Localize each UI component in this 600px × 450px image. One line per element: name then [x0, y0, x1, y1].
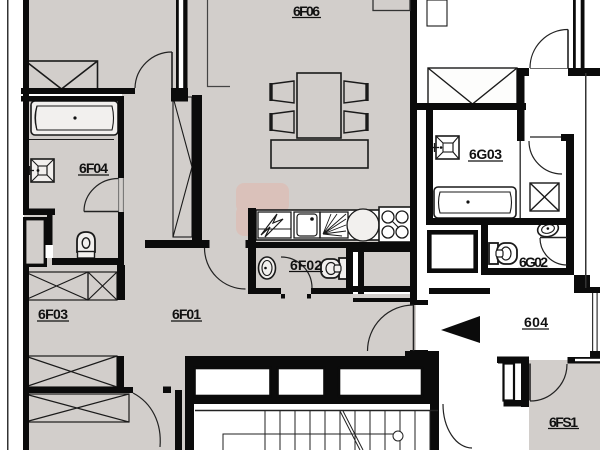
svg-text:6F04: 6F04	[79, 160, 108, 176]
svg-text:604: 604	[524, 314, 548, 330]
svg-text:6F03: 6F03	[38, 306, 68, 322]
svg-text:6G02: 6G02	[519, 254, 548, 270]
svg-text:6G03: 6G03	[469, 146, 502, 162]
svg-text:6F02: 6F02	[290, 257, 322, 273]
svg-text:6F01: 6F01	[172, 306, 201, 322]
svg-text:6FS1: 6FS1	[549, 414, 578, 430]
svg-text:6F06: 6F06	[293, 3, 320, 19]
